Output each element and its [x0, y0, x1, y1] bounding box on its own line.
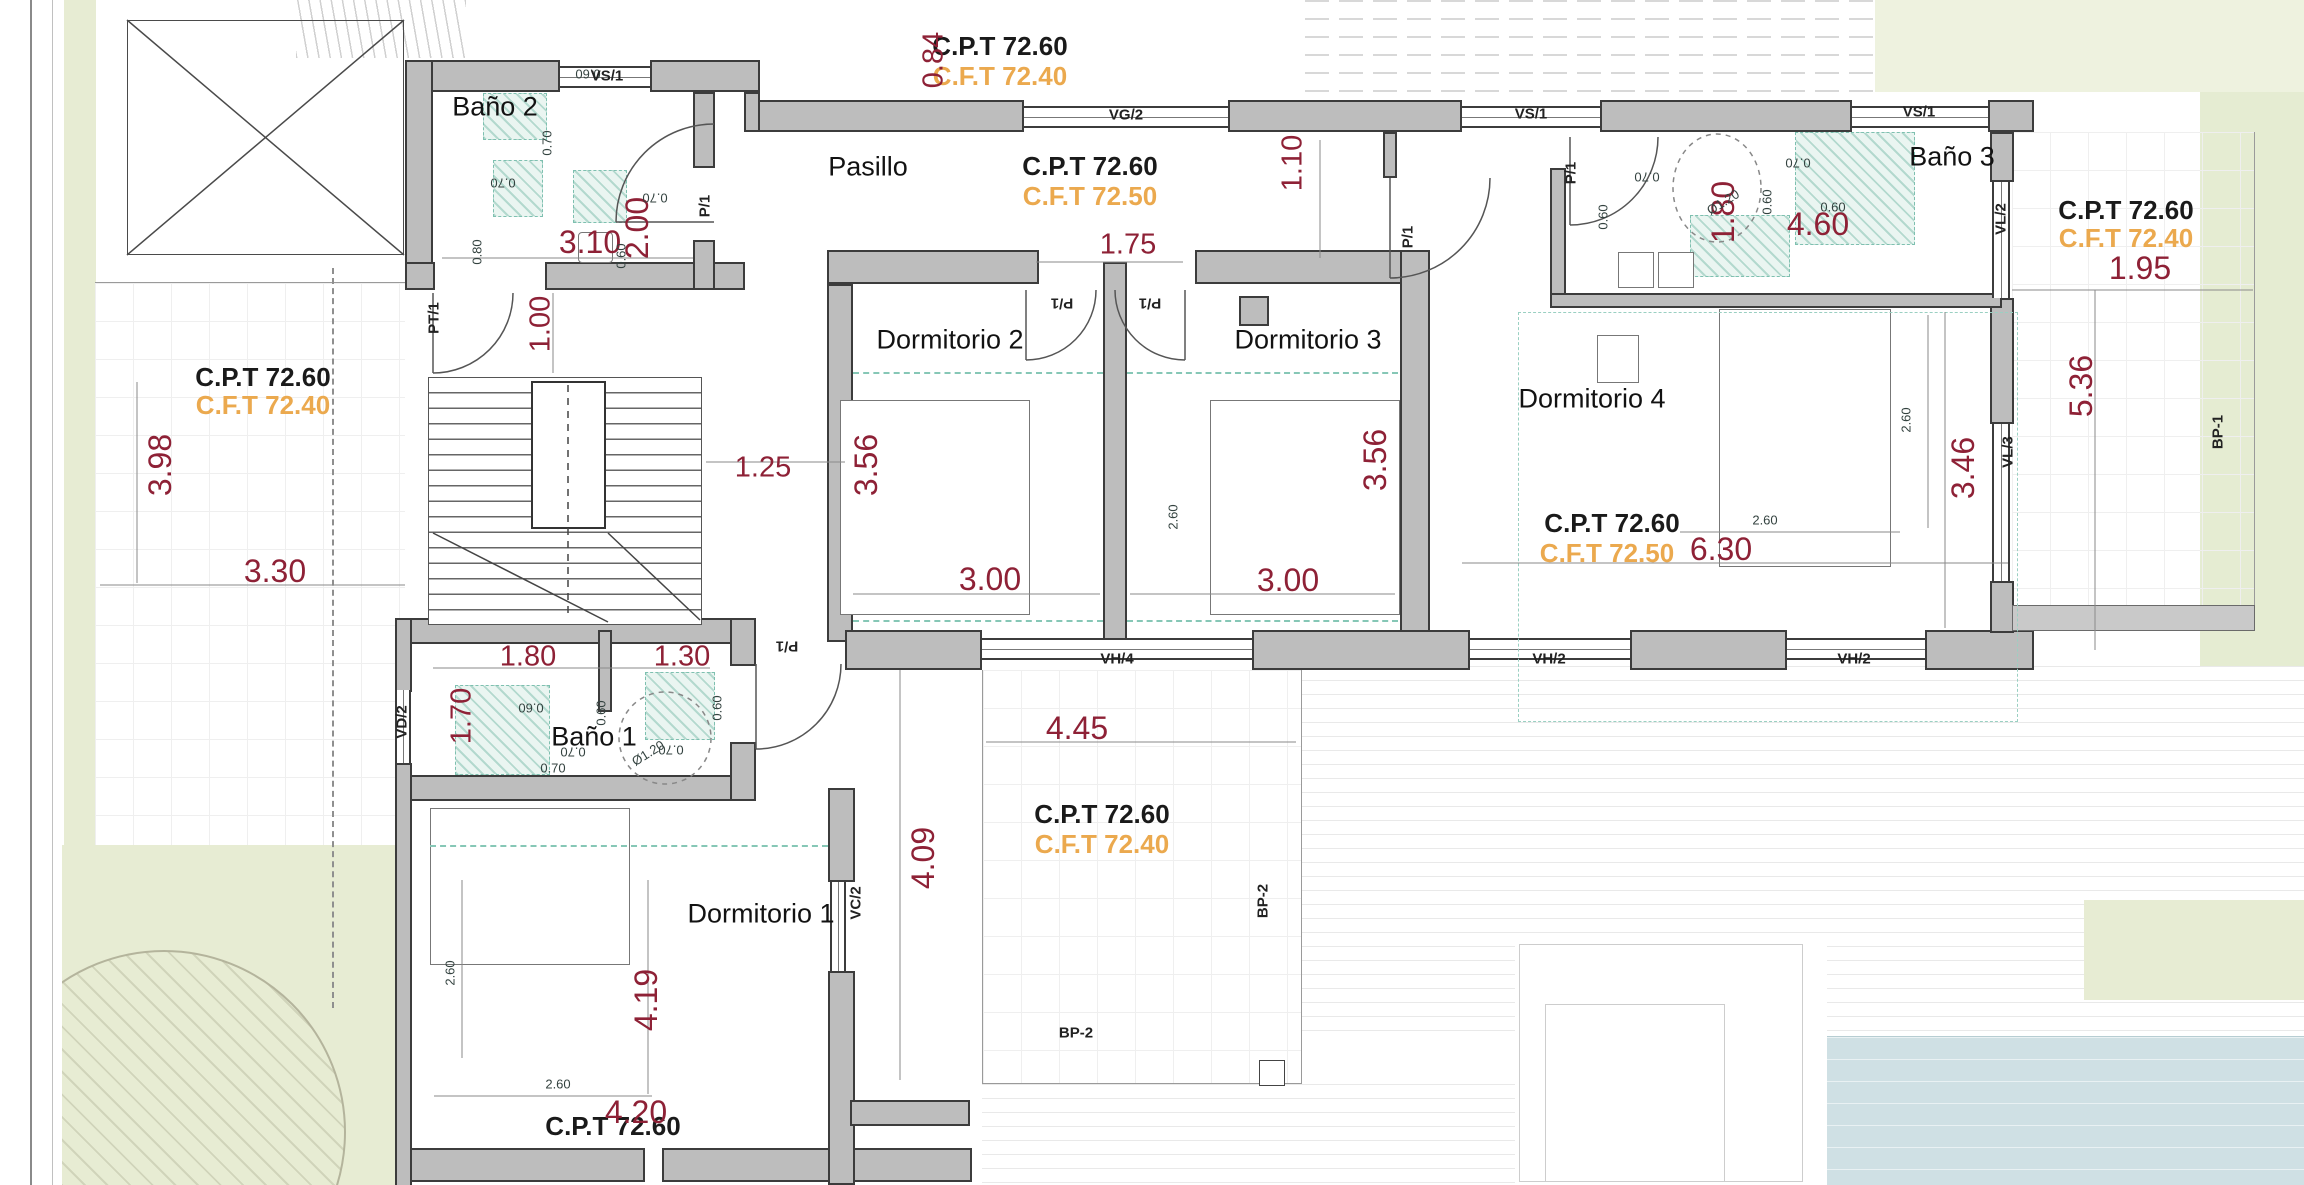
room-label-dorm3: Dormitorio 3: [1234, 327, 1381, 354]
dim-small: 2.60: [1167, 504, 1180, 529]
wall: [827, 250, 1039, 284]
swimming-pool: [1827, 1036, 2304, 1185]
opening-label-bp2: BP-2: [1059, 1026, 1093, 1041]
dim-small: 2.60: [1752, 514, 1777, 527]
dim-small: 0.70: [541, 130, 554, 155]
bed-dorm1: [430, 808, 630, 965]
level-cpt: C.P.T 72.60: [2058, 197, 2193, 223]
dim-small: 0.70: [1785, 157, 1810, 170]
level-cft: C.F.T 72.50: [1023, 183, 1157, 209]
dim: 4.45: [1046, 712, 1108, 744]
dim-small: 0.70: [490, 177, 515, 190]
garden-patch-pool: [2084, 900, 2304, 1000]
opening-label-vs1: VS/1: [1515, 107, 1548, 122]
sink: [1658, 252, 1694, 288]
dim: 3.46: [1947, 437, 1979, 499]
door-label-pt1: PT/1: [427, 302, 442, 334]
wall: [1400, 250, 1430, 657]
wall: [693, 240, 715, 290]
dim-small: 2.60: [545, 1078, 570, 1091]
opening-label-vg2: VG/2: [1109, 108, 1143, 123]
dim: 1.70: [448, 688, 477, 744]
dim: 1.30: [654, 643, 710, 672]
opening-label-vl2: VL/2: [1994, 203, 2009, 235]
room-label-pasillo: Pasillo: [828, 154, 908, 181]
garden-bottom-left: [62, 845, 402, 1185]
opening-label-vc2: VC/2: [849, 886, 864, 919]
wall: [730, 618, 756, 666]
garden-strip-left: [64, 0, 96, 845]
wall: [650, 60, 760, 92]
opening-label-vl3: VL/3: [2001, 436, 2016, 468]
planter-outline-inner: [1545, 1004, 1725, 1182]
window-vl2: [1992, 182, 2010, 298]
room-label-bano3: Baño 3: [1909, 144, 1995, 171]
dim-small: 2.60: [444, 960, 457, 985]
level-cpt: C.P.T 72.60: [1544, 510, 1679, 536]
stair-void: [531, 381, 606, 529]
wall: [744, 100, 1024, 132]
wall: [395, 618, 412, 692]
level-cpt: C.P.T 72.60: [932, 33, 1067, 59]
terrace-east-curb: [2012, 605, 2255, 631]
room-label-dorm2: Dormitorio 2: [876, 327, 1023, 354]
dim: 1.25: [735, 454, 791, 483]
dim-small: 0.80: [471, 239, 484, 264]
dim: 3.10: [559, 226, 621, 258]
wall: [1103, 262, 1127, 642]
room-label-bano2: Baño 2: [452, 94, 538, 121]
dim-small: 2.60: [1900, 407, 1913, 432]
dim: 6.30: [1690, 533, 1752, 565]
guide-dashed: [853, 620, 1103, 622]
floor-plan-drawing: Baño 2 Pasillo Baño 3 Dormitorio 2 Dormi…: [0, 0, 2304, 1185]
opening-label-vh2: VH/2: [1532, 652, 1565, 667]
dim: 0.84: [920, 32, 949, 88]
level-cpt: C.P.T 72.60: [1034, 801, 1169, 827]
dim-small: 0.60: [1820, 201, 1845, 214]
room-label-dorm4: Dormitorio 4: [1518, 386, 1665, 413]
dim-small: 0.70: [658, 744, 683, 757]
dim: 1.95: [2109, 252, 2171, 284]
dim: 3.00: [959, 563, 1021, 595]
opening-label-vd2: VD/2: [395, 705, 410, 738]
dim: 1.10: [1279, 135, 1308, 191]
terrace-west-dashed-boundary: [332, 268, 334, 1008]
dim: 3.56: [850, 434, 882, 496]
wall: [828, 788, 855, 882]
dim: 4.09: [907, 827, 939, 889]
opening-label-vh4: VH/4: [1100, 652, 1133, 667]
wall: [545, 262, 745, 290]
wall-pilaster: [1239, 296, 1269, 326]
opening-label-bp1: BP-1: [2211, 415, 2226, 449]
door-label-p1: P/1: [1564, 162, 1579, 185]
wall: [1195, 250, 1427, 284]
sheet-margin-line2: [52, 0, 53, 1185]
level-cft: C.F.T 72.40: [1035, 831, 1169, 857]
wall: [395, 763, 412, 1185]
level-cft: C.F.T 72.50: [1540, 540, 1674, 566]
guide-dashed: [1127, 620, 1398, 622]
dim: 4.20: [605, 1096, 667, 1128]
tree-canopy: [62, 950, 346, 1185]
wall: [405, 262, 435, 290]
dim-small: 0.60: [518, 702, 543, 715]
staircase: [428, 377, 702, 625]
pergola-louvres: [1295, 0, 1875, 92]
door-label-p1: P/1: [1401, 226, 1416, 249]
dim: 1.00: [527, 296, 556, 352]
wall: [1228, 100, 1462, 132]
dim: 1.80: [500, 643, 556, 672]
wall: [1252, 630, 1470, 670]
wall: [1550, 168, 1566, 298]
dim-small: 0.70: [540, 762, 565, 775]
dim-small: 0.70: [560, 746, 585, 759]
opening-label-bp2: BP-2: [1256, 884, 1271, 918]
dim-small: 0.60: [615, 243, 628, 268]
wall: [662, 1148, 972, 1182]
wall: [744, 92, 760, 132]
level-cft: C.F.T 72.40: [2059, 225, 2193, 251]
wall: [1988, 100, 2034, 132]
garden-top-right: [1875, 0, 2304, 92]
dim: 3.30: [244, 555, 306, 587]
wall: [1600, 100, 1852, 132]
dim: 5.36: [2065, 355, 2097, 417]
wall: [410, 1148, 645, 1182]
door-label-p1: P/1: [776, 639, 799, 654]
wall: [845, 630, 982, 670]
dim: 3.98: [144, 434, 176, 496]
opening-label-vs1: VS/1: [591, 69, 624, 84]
dim-small: 0.60: [1761, 189, 1774, 214]
dim-small: 0.70: [1634, 171, 1659, 184]
door-label-p1: P/1: [1139, 296, 1162, 311]
terrace-corner-post: [1259, 1060, 1285, 1086]
guide-dashed: [853, 372, 1103, 374]
wall: [405, 60, 433, 290]
void-box: [127, 20, 404, 255]
sheet-margin-line: [30, 0, 32, 1185]
door-label-p1: P/1: [698, 195, 713, 218]
sink: [1618, 252, 1654, 288]
level-cft: C.F.T 72.40: [933, 63, 1067, 89]
wall: [1383, 132, 1397, 178]
terrace-south: [982, 670, 1302, 1084]
dim: 3.56: [1359, 429, 1391, 491]
dim: 4.19: [630, 969, 662, 1031]
room-label-dorm1: Dormitorio 1: [687, 901, 834, 928]
guide-dashed: [1127, 372, 1398, 374]
dim-small: 0.60: [1597, 204, 1610, 229]
wall: [730, 742, 756, 801]
opening-label-vs1: VS/1: [1903, 105, 1936, 120]
wall: [693, 92, 715, 168]
dim: 1.75: [1100, 231, 1156, 260]
wall: [850, 1100, 970, 1126]
opening-label-vh2: VH/2: [1837, 652, 1870, 667]
dim-small: 0.70: [642, 192, 667, 205]
guide-dashed: [430, 845, 828, 847]
dim-small: 0.60: [711, 695, 724, 720]
level-cpt: C.P.T 72.60: [1022, 153, 1157, 179]
door-label-p1: P/1: [1051, 296, 1074, 311]
dim: 3.00: [1257, 564, 1319, 596]
dim-small: 0.60: [595, 700, 608, 725]
wall: [410, 775, 756, 801]
deck-boards-south: [982, 1084, 1515, 1185]
level-cft: C.F.T 72.40: [196, 392, 330, 418]
wall: [828, 971, 855, 1185]
level-cpt: C.P.T 72.60: [195, 364, 330, 390]
deck-landing: [1515, 940, 1827, 1185]
shower-tray: [645, 672, 715, 740]
wall: [1550, 293, 2002, 308]
